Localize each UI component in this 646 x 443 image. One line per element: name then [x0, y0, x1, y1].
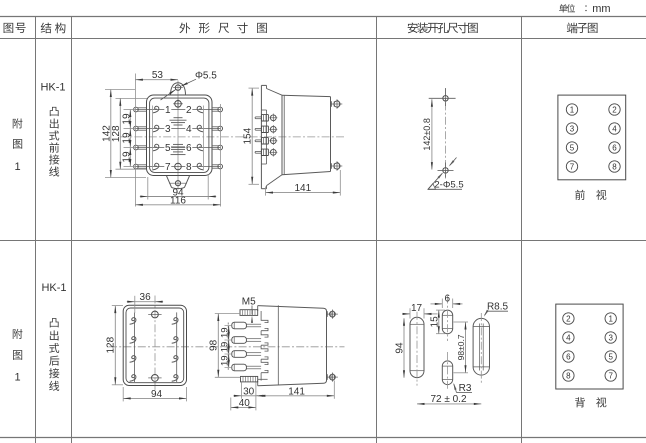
svg-text:1: 1	[15, 372, 21, 384]
svg-text:154: 154	[243, 127, 254, 144]
svg-text:19: 19	[220, 342, 231, 353]
svg-text:8: 8	[186, 162, 192, 173]
svg-text:7: 7	[165, 162, 171, 173]
svg-text:94: 94	[151, 389, 163, 400]
svg-text:3: 3	[570, 124, 575, 133]
svg-text:4: 4	[566, 333, 571, 342]
svg-text:HK-1: HK-1	[40, 82, 65, 94]
svg-text:98±0.7: 98±0.7	[456, 334, 466, 360]
svg-text:mm: mm	[592, 3, 610, 15]
svg-text:128: 128	[106, 336, 117, 353]
svg-text:4: 4	[612, 124, 617, 133]
svg-text:19: 19	[220, 355, 231, 366]
svg-text:7: 7	[570, 162, 575, 171]
svg-text:1: 1	[15, 161, 21, 173]
svg-text:98: 98	[208, 339, 219, 351]
svg-text:6: 6	[612, 143, 617, 152]
svg-text:1: 1	[570, 105, 575, 114]
svg-text:128: 128	[111, 125, 122, 142]
svg-text:M5: M5	[242, 296, 256, 307]
svg-text:6: 6	[566, 352, 571, 361]
svg-text:5: 5	[165, 143, 171, 154]
svg-text:3: 3	[608, 333, 613, 342]
svg-text:116: 116	[170, 196, 186, 207]
svg-text:15: 15	[430, 316, 441, 328]
svg-text:8: 8	[566, 371, 571, 380]
svg-text:6: 6	[445, 293, 451, 304]
svg-text:53: 53	[152, 70, 164, 81]
svg-text:2: 2	[612, 105, 617, 114]
svg-text:19: 19	[122, 132, 133, 144]
svg-text:6: 6	[186, 143, 192, 154]
svg-text:Φ5.5: Φ5.5	[195, 70, 217, 81]
svg-text:2: 2	[186, 105, 192, 116]
svg-text:19: 19	[122, 151, 133, 163]
svg-text:HK-1: HK-1	[41, 282, 66, 294]
svg-text:36: 36	[140, 292, 152, 303]
svg-text:5: 5	[570, 143, 575, 152]
svg-text:7: 7	[608, 371, 613, 380]
svg-text:141: 141	[294, 183, 311, 194]
svg-text:2: 2	[566, 314, 571, 323]
svg-text:30: 30	[243, 386, 255, 397]
svg-text:8: 8	[612, 162, 617, 171]
svg-text:5: 5	[608, 352, 613, 361]
svg-text:142±0.8: 142±0.8	[422, 118, 432, 150]
svg-text:4: 4	[186, 124, 192, 135]
svg-text:141: 141	[288, 386, 305, 397]
svg-text:1: 1	[608, 314, 613, 323]
svg-text:1: 1	[165, 105, 171, 116]
svg-text:40: 40	[239, 398, 251, 409]
svg-text:17: 17	[411, 303, 423, 314]
svg-text:19: 19	[220, 327, 231, 338]
svg-text:72 ± 0.2: 72 ± 0.2	[430, 394, 467, 405]
svg-text:19: 19	[122, 113, 133, 125]
svg-text:94: 94	[395, 342, 406, 354]
svg-text:3: 3	[165, 124, 171, 135]
